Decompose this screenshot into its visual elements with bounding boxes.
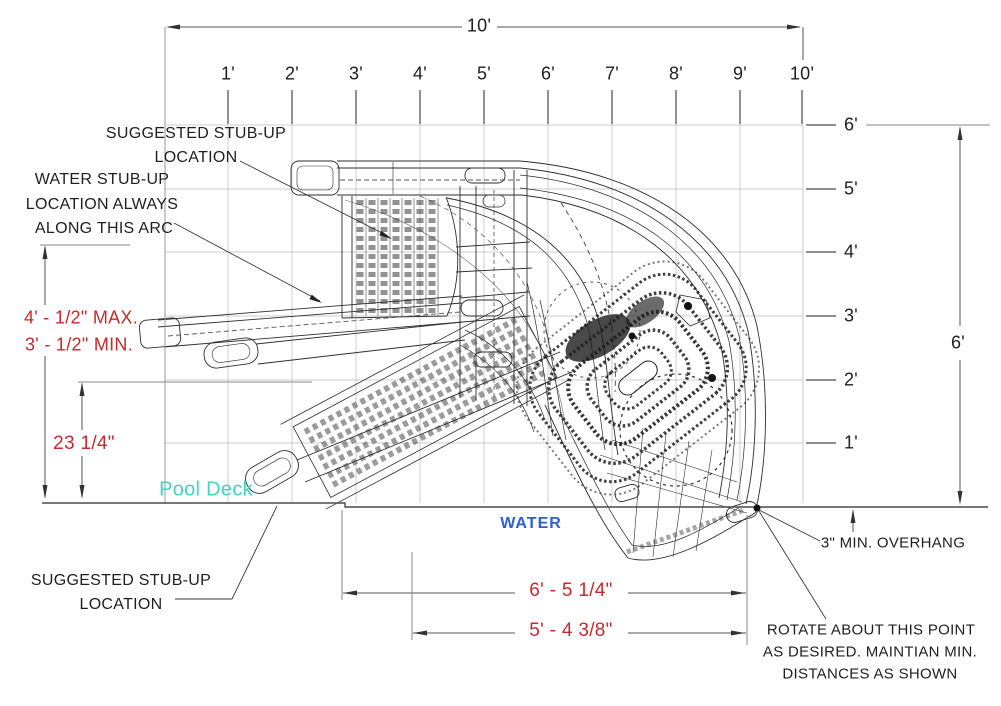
middle-chute xyxy=(139,296,465,370)
splash-cluster xyxy=(497,241,779,514)
water-stub-up-line2: LOCATION ALWAYS xyxy=(26,196,178,214)
ruler-top-4ft: 4' xyxy=(413,64,427,85)
deck-to-rail-dimension: 5' - 4 3/8" xyxy=(529,620,612,642)
ruler-right-1ft: 1' xyxy=(844,433,858,454)
suggested-stub-up-top-line2: LOCATION xyxy=(154,149,237,167)
ruler-top-2ft: 2' xyxy=(285,64,299,85)
ruler-right-2ft: 2' xyxy=(844,370,858,391)
ruler-top-3ft: 3' xyxy=(349,64,363,85)
water-stub-up-line3: ALONG THIS ARC xyxy=(35,220,173,238)
rotate-point xyxy=(754,505,761,512)
ruler-right-6ft: 6' xyxy=(844,115,858,136)
water-stub-up-line1: WATER STUB-UP xyxy=(35,171,170,189)
leader-lines xyxy=(174,161,826,619)
pool-deck-label: Pool Deck xyxy=(159,479,253,502)
upper-stairs xyxy=(342,196,458,318)
water-label: WATER xyxy=(500,515,562,533)
ruler-top-6ft: 6' xyxy=(541,64,555,85)
ruler-right-5ft: 5' xyxy=(844,179,858,200)
suggested-stub-up-bottom-line1: SUGGESTED STUB-UP xyxy=(31,572,211,590)
suggested-stub-up-bottom-line2: LOCATION xyxy=(79,596,162,614)
ruler-right-3ft: 3' xyxy=(844,306,858,327)
deck-to-end-dimension: 6' - 5 1/4" xyxy=(529,580,612,602)
overall-width-dimension: 10' xyxy=(467,16,491,37)
top-chute xyxy=(291,161,522,195)
ruler-top-7ft: 7' xyxy=(605,64,619,85)
min-dimension: 3' - 1/2" MIN. xyxy=(25,335,133,356)
ruler-top-5ft: 5' xyxy=(477,64,491,85)
overall-height-dimension: 6' xyxy=(951,333,965,354)
ruler-top-9ft: 9' xyxy=(733,64,747,85)
rotate-note-line3: DISTANCES AS SHOWN xyxy=(782,666,957,683)
ruler-top-10ft: 10' xyxy=(790,64,814,85)
overhang-note: 3" MIN. OVERHANG xyxy=(821,535,965,552)
rotate-note-line1: ROTATE ABOUT THIS POINT xyxy=(767,622,975,639)
ruler-right-4ft: 4' xyxy=(844,242,858,263)
ruler-top-8ft: 8' xyxy=(669,64,683,85)
ruler-top-1ft: 1' xyxy=(221,64,235,85)
pool-slide-installation-diagram: 1' 2' 3' 4' 5' 6' 7' 8' 9' 10' 6' 5' 4' … xyxy=(0,0,1001,706)
rotate-note-line2: AS DESIRED. MAINTIAN MIN. xyxy=(763,644,977,661)
grid xyxy=(165,125,803,503)
suggested-stub-up-top-line1: SUGGESTED STUB-UP xyxy=(106,125,286,143)
deck-line xyxy=(42,503,988,507)
max-dimension: 4' - 1/2" MAX. xyxy=(24,308,138,329)
stub-height-dimension: 23 1/4" xyxy=(53,433,115,455)
